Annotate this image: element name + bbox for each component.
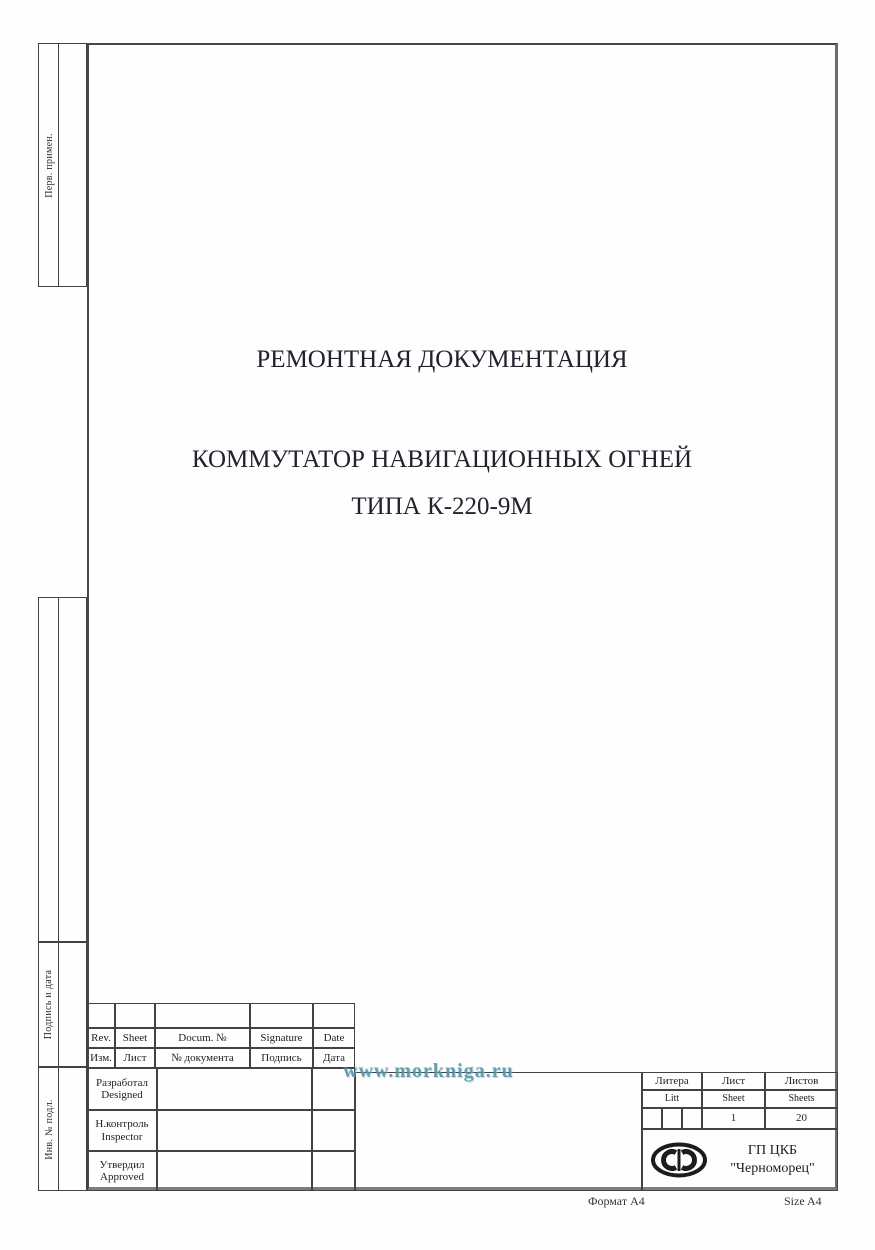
sidebar-box-empty [38,597,87,942]
company-name: ГП ЦКБ "Черноморец" [708,1142,837,1178]
stamp-header-signature-en: Signature [250,1028,313,1048]
company-name-line1: ГП ЦКБ [708,1142,837,1160]
stamp-header-signature-ru: Подпись [250,1048,313,1068]
stamp-cell-empty [87,1003,115,1028]
role-designed-ru: Разработал [96,1077,148,1089]
stamp-list-header-en: Sheet [702,1090,765,1108]
stamp-sheet-number: 1 [702,1108,765,1129]
document-page: Перв. примен. Подпись и дата Инв. № подл… [0,0,875,1250]
stamp-litera-header-ru: Литера [642,1072,702,1090]
format-note-ru: Формат А4 [588,1194,645,1209]
role-approved-ru: Утвердил [100,1159,145,1171]
sidebar-box-first-application: Перв. примен. [38,43,87,287]
sidebar-label-inventory-number: Инв. № подл. [44,1099,55,1160]
doc-title-line1: РЕМОНТНАЯ ДОКУМЕНТАЦИЯ [256,346,627,374]
stamp-designation-cell [355,1072,642,1191]
stamp-header-rev-en: Rev. [87,1028,115,1048]
stamp-company-cell: ГП ЦКБ "Черноморец" [642,1129,838,1191]
sidebar-label-signature-date: Подпись и дата [44,970,55,1039]
stamp-cell-inspector-name [157,1110,312,1151]
sidebar-label-wrap: Перв. примен. [39,44,59,286]
stamp-list-header-ru: Лист [702,1072,765,1090]
stamp-cell-empty [250,1003,313,1028]
stamp-role-inspector: Н.контроль Inspector [87,1110,157,1151]
stamp-cell-designed-name [157,1068,312,1110]
stamp-sheets-total: 20 [765,1108,838,1129]
role-designed-en: Designed [101,1089,143,1101]
sidebar-box-signature-date: Подпись и дата [38,942,87,1067]
site-watermark: www.morkniga.ru [343,1060,514,1083]
chernomorets-logo-icon [650,1142,708,1178]
stamp-cell-empty [313,1003,355,1028]
stamp-role-approved: Утвердил Approved [87,1151,157,1191]
sidebar-box-divider [58,598,59,941]
stamp-header-docnum-ru: № документа [155,1048,250,1068]
sidebar-label-wrap: Подпись и дата [39,943,59,1066]
stamp-header-date-en: Date [313,1028,355,1048]
stamp-listov-header-ru: Листов [765,1072,838,1090]
stamp-cell-inspector-date [312,1110,355,1151]
stamp-listov-header-en: Sheets [765,1090,838,1108]
doc-title-line2: КОММУТАТОР НАВИГАЦИОННЫХ ОГНЕЙ [192,446,692,474]
sidebar-label-first-application: Перв. примен. [44,133,55,198]
stamp-cell-empty [155,1003,250,1028]
stamp-header-sheet-en: Sheet [115,1028,155,1048]
stamp-cell-approved-date [312,1151,355,1191]
doc-title-line3: ТИПА К-220-9М [351,493,532,521]
sidebar-label-wrap: Инв. № подл. [39,1068,59,1190]
sidebar-box-inventory-number: Инв. № подл. [38,1067,87,1191]
role-approved-en: Approved [100,1171,144,1183]
stamp-cell-empty [115,1003,155,1028]
stamp-litera-cell-2 [662,1108,682,1129]
stamp-role-designed: Разработал Designed [87,1068,157,1110]
stamp-cell-approved-name [157,1151,312,1191]
stamp-litera-header-en: Litt [642,1090,702,1108]
role-inspector-ru: Н.контроль [95,1118,148,1130]
stamp-litera-cell-1 [642,1108,662,1129]
company-name-line2: "Черноморец" [708,1160,837,1178]
stamp-header-sheet-ru: Лист [115,1048,155,1068]
stamp-header-rev-ru: Изм. [87,1048,115,1068]
format-note-en: Size A4 [784,1194,822,1209]
role-inspector-en: Inspector [102,1131,143,1143]
title-block: Rev. Sheet Docum. № Signature Date Изм. … [87,1003,838,1191]
stamp-litera-cell-3 [682,1108,702,1129]
stamp-header-docnum-en: Docum. № [155,1028,250,1048]
